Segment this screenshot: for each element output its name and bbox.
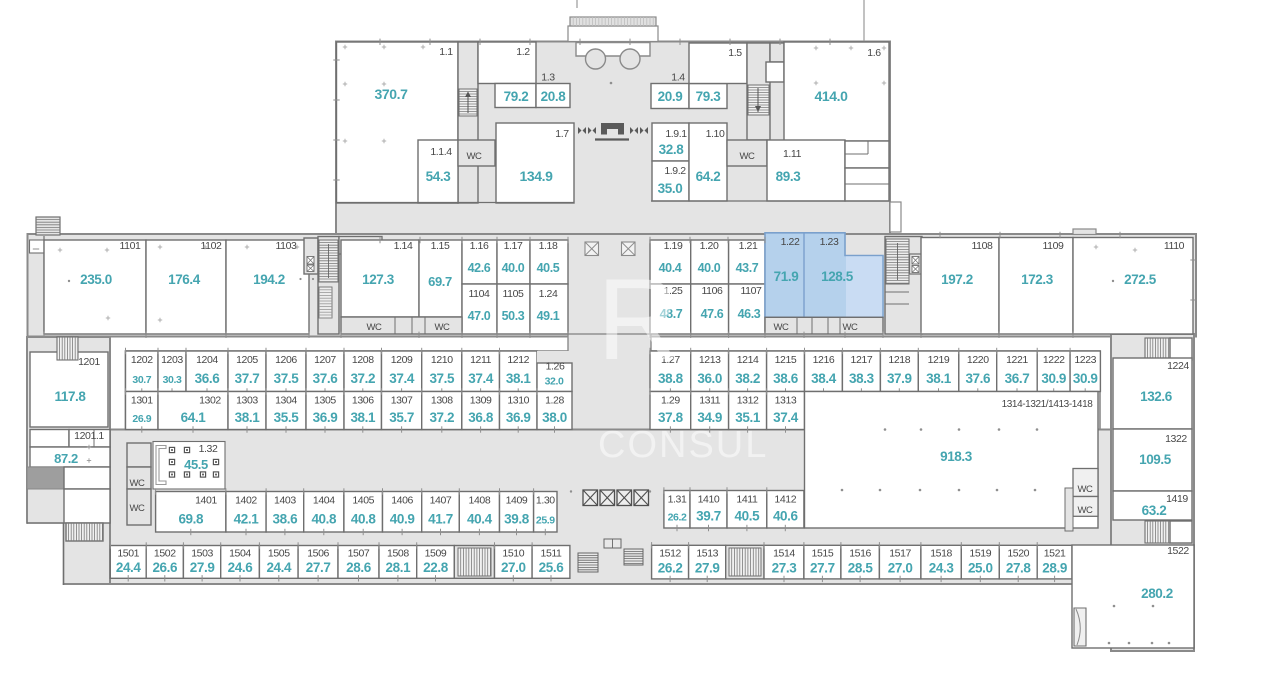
svg-text:40.5: 40.5 bbox=[537, 261, 560, 275]
svg-text:1419: 1419 bbox=[1166, 493, 1188, 505]
svg-text:1211: 1211 bbox=[470, 354, 492, 366]
svg-text:38.1: 38.1 bbox=[235, 410, 261, 425]
svg-text:1312: 1312 bbox=[737, 395, 759, 407]
svg-text:1314-1321/1413-1418: 1314-1321/1413-1418 bbox=[1002, 399, 1094, 410]
svg-text:24.6: 24.6 bbox=[228, 560, 254, 575]
svg-text:1202: 1202 bbox=[131, 354, 153, 366]
svg-text:1401: 1401 bbox=[195, 495, 217, 507]
svg-text:1.21: 1.21 bbox=[739, 240, 758, 252]
svg-text:1406: 1406 bbox=[391, 495, 413, 507]
svg-text:1520: 1520 bbox=[1007, 547, 1029, 559]
svg-text:117.8: 117.8 bbox=[54, 389, 86, 404]
svg-text:26.6: 26.6 bbox=[152, 560, 178, 575]
svg-text:1203: 1203 bbox=[161, 354, 183, 366]
svg-text:27.9: 27.9 bbox=[695, 561, 720, 576]
svg-text:1501: 1501 bbox=[117, 548, 139, 560]
svg-text:28.9: 28.9 bbox=[1042, 561, 1067, 576]
svg-text:1308: 1308 bbox=[431, 395, 453, 407]
svg-text:32.0: 32.0 bbox=[545, 376, 564, 388]
svg-text:1503: 1503 bbox=[191, 548, 213, 560]
svg-text:25.9: 25.9 bbox=[536, 515, 555, 527]
svg-text:38.4: 38.4 bbox=[811, 371, 837, 386]
svg-text:1102: 1102 bbox=[201, 240, 223, 252]
svg-text:1.6: 1.6 bbox=[867, 47, 881, 59]
svg-text:1514: 1514 bbox=[773, 547, 795, 559]
svg-text:1109: 1109 bbox=[1043, 240, 1065, 252]
svg-text:69.7: 69.7 bbox=[428, 274, 452, 289]
svg-text:1208: 1208 bbox=[352, 354, 374, 366]
svg-text:64.1: 64.1 bbox=[181, 410, 207, 425]
svg-text:27.0: 27.0 bbox=[501, 560, 526, 575]
svg-text:1516: 1516 bbox=[849, 547, 871, 559]
svg-text:1.14: 1.14 bbox=[394, 240, 413, 252]
svg-text:26.9: 26.9 bbox=[132, 413, 151, 425]
svg-text:1407: 1407 bbox=[430, 495, 452, 507]
svg-text:1.16: 1.16 bbox=[470, 240, 489, 252]
svg-text:36.9: 36.9 bbox=[506, 410, 531, 425]
svg-text:1213: 1213 bbox=[699, 354, 721, 366]
svg-text:45.5: 45.5 bbox=[184, 457, 208, 472]
svg-text:1210: 1210 bbox=[431, 354, 453, 366]
svg-text:37.5: 37.5 bbox=[429, 371, 455, 386]
svg-text:30.9: 30.9 bbox=[1041, 371, 1066, 386]
svg-text:1.11: 1.11 bbox=[783, 148, 802, 160]
svg-text:1.22: 1.22 bbox=[781, 236, 800, 248]
svg-text:64.2: 64.2 bbox=[696, 169, 721, 184]
svg-text:1408: 1408 bbox=[469, 495, 491, 507]
svg-text:40.0: 40.0 bbox=[502, 261, 525, 275]
svg-text:1207: 1207 bbox=[314, 354, 336, 366]
svg-text:46.3: 46.3 bbox=[738, 307, 761, 321]
svg-text:34.9: 34.9 bbox=[697, 410, 722, 425]
svg-text:1510: 1510 bbox=[502, 548, 524, 560]
svg-text:1.24: 1.24 bbox=[539, 288, 558, 300]
svg-text:38.1: 38.1 bbox=[926, 371, 952, 386]
svg-text:1504: 1504 bbox=[229, 548, 251, 560]
svg-text:42.1: 42.1 bbox=[234, 512, 260, 527]
svg-text:WC: WC bbox=[773, 322, 789, 333]
svg-text:109.5: 109.5 bbox=[1139, 452, 1172, 467]
svg-text:36.8: 36.8 bbox=[468, 410, 494, 425]
svg-text:27.3: 27.3 bbox=[772, 561, 798, 576]
svg-text:280.2: 280.2 bbox=[1141, 586, 1173, 601]
svg-text:1513: 1513 bbox=[696, 547, 718, 559]
svg-text:28.6: 28.6 bbox=[346, 560, 372, 575]
svg-text:WC: WC bbox=[366, 322, 382, 333]
svg-text:1218: 1218 bbox=[888, 354, 910, 366]
svg-text:370.7: 370.7 bbox=[374, 86, 408, 102]
svg-text:1105: 1105 bbox=[503, 288, 525, 300]
svg-text:22.8: 22.8 bbox=[423, 560, 449, 575]
svg-text:40.8: 40.8 bbox=[351, 512, 377, 527]
svg-text:1.5: 1.5 bbox=[728, 47, 742, 59]
svg-text:1305: 1305 bbox=[314, 395, 336, 407]
svg-text:26.2: 26.2 bbox=[658, 561, 683, 576]
svg-text:38.6: 38.6 bbox=[773, 371, 799, 386]
svg-text:1.23: 1.23 bbox=[820, 236, 839, 248]
svg-text:37.2: 37.2 bbox=[429, 410, 454, 425]
svg-text:47.0: 47.0 bbox=[468, 309, 491, 323]
svg-text:1.17: 1.17 bbox=[504, 240, 523, 252]
svg-text:1518: 1518 bbox=[930, 547, 952, 559]
svg-text:1.18: 1.18 bbox=[539, 240, 558, 252]
svg-text:1507: 1507 bbox=[348, 548, 370, 560]
svg-text:40.8: 40.8 bbox=[311, 512, 337, 527]
svg-text:128.5: 128.5 bbox=[821, 269, 854, 284]
svg-text:30.7: 30.7 bbox=[132, 374, 151, 386]
svg-text:1.29: 1.29 bbox=[661, 395, 680, 407]
svg-text:1.26: 1.26 bbox=[546, 361, 565, 373]
svg-text:28.1: 28.1 bbox=[386, 560, 412, 575]
svg-text:172.3: 172.3 bbox=[1021, 272, 1054, 287]
svg-text:30.3: 30.3 bbox=[163, 374, 182, 386]
svg-text:1104: 1104 bbox=[469, 288, 491, 300]
svg-text:1410: 1410 bbox=[698, 494, 720, 506]
svg-text:1313: 1313 bbox=[775, 395, 797, 407]
svg-text:89.3: 89.3 bbox=[776, 169, 802, 184]
svg-text:54.3: 54.3 bbox=[426, 169, 452, 184]
svg-text:27.7: 27.7 bbox=[306, 560, 331, 575]
svg-text:1221: 1221 bbox=[1006, 354, 1028, 366]
svg-text:27.0: 27.0 bbox=[888, 561, 913, 576]
svg-text:1201.1: 1201.1 bbox=[74, 430, 104, 442]
svg-text:39.7: 39.7 bbox=[696, 509, 721, 524]
svg-text:1219: 1219 bbox=[928, 354, 950, 366]
svg-text:WC: WC bbox=[466, 151, 482, 162]
svg-text:1303: 1303 bbox=[236, 395, 258, 407]
svg-text:39.8: 39.8 bbox=[504, 512, 530, 527]
svg-text:1212: 1212 bbox=[507, 354, 529, 366]
svg-text:1103: 1103 bbox=[276, 240, 298, 252]
svg-text:1.7: 1.7 bbox=[555, 128, 569, 140]
svg-text:41.7: 41.7 bbox=[428, 512, 453, 527]
svg-text:1522: 1522 bbox=[1167, 545, 1189, 557]
svg-text:35.5: 35.5 bbox=[274, 410, 300, 425]
svg-text:49.1: 49.1 bbox=[537, 309, 560, 323]
svg-text:25.6: 25.6 bbox=[539, 560, 565, 575]
svg-text:37.5: 37.5 bbox=[274, 371, 300, 386]
svg-text:43.7: 43.7 bbox=[736, 261, 759, 275]
svg-text:1206: 1206 bbox=[275, 354, 297, 366]
svg-text:1215: 1215 bbox=[775, 354, 797, 366]
svg-text:1110: 1110 bbox=[1164, 240, 1185, 252]
svg-text:1223: 1223 bbox=[1074, 354, 1096, 366]
svg-text:1.1: 1.1 bbox=[439, 46, 453, 58]
svg-text:1.32: 1.32 bbox=[199, 443, 218, 455]
svg-text:35.1: 35.1 bbox=[735, 410, 761, 425]
svg-text:87.2: 87.2 bbox=[54, 451, 78, 466]
svg-text:1306: 1306 bbox=[352, 395, 374, 407]
svg-text:1301: 1301 bbox=[131, 395, 153, 407]
svg-text:WC: WC bbox=[842, 322, 858, 333]
svg-text:1216: 1216 bbox=[813, 354, 835, 366]
svg-text:176.4: 176.4 bbox=[168, 272, 201, 287]
svg-text:47.6: 47.6 bbox=[701, 307, 724, 321]
svg-text:38.2: 38.2 bbox=[735, 371, 760, 386]
svg-text:1.30: 1.30 bbox=[536, 495, 555, 507]
svg-text:WC: WC bbox=[434, 322, 450, 333]
svg-text:1409: 1409 bbox=[506, 495, 528, 507]
svg-text:1512: 1512 bbox=[659, 547, 681, 559]
svg-text:194.2: 194.2 bbox=[253, 272, 285, 287]
svg-text:27.8: 27.8 bbox=[1006, 561, 1032, 576]
svg-text:1405: 1405 bbox=[352, 495, 374, 507]
svg-text:24.4: 24.4 bbox=[116, 560, 142, 575]
svg-text:1.28: 1.28 bbox=[545, 395, 564, 407]
svg-text:1310: 1310 bbox=[507, 395, 529, 407]
svg-text:37.6: 37.6 bbox=[965, 371, 991, 386]
svg-text:79.2: 79.2 bbox=[504, 89, 529, 104]
svg-text:WC: WC bbox=[1077, 484, 1093, 495]
svg-text:38.1: 38.1 bbox=[350, 410, 376, 425]
svg-text:38.6: 38.6 bbox=[273, 512, 299, 527]
svg-text:1322: 1322 bbox=[1165, 433, 1187, 445]
svg-text:1217: 1217 bbox=[851, 354, 873, 366]
svg-text:37.4: 37.4 bbox=[468, 371, 494, 386]
svg-text:1222: 1222 bbox=[1043, 354, 1065, 366]
svg-text:1209: 1209 bbox=[391, 354, 413, 366]
svg-text:1521: 1521 bbox=[1044, 547, 1066, 559]
svg-text:1101: 1101 bbox=[120, 240, 142, 252]
svg-text:79.3: 79.3 bbox=[696, 89, 722, 104]
svg-text:1.3: 1.3 bbox=[541, 72, 555, 84]
svg-text:WC: WC bbox=[739, 151, 755, 162]
svg-text:63.2: 63.2 bbox=[1142, 503, 1167, 518]
svg-text:1.19: 1.19 bbox=[664, 240, 683, 252]
svg-text:1205: 1205 bbox=[236, 354, 258, 366]
svg-text:1511: 1511 bbox=[541, 548, 563, 560]
svg-text:1302: 1302 bbox=[199, 395, 221, 407]
svg-text:42.6: 42.6 bbox=[468, 261, 491, 275]
svg-text:40.9: 40.9 bbox=[390, 512, 415, 527]
svg-text:1106: 1106 bbox=[702, 285, 724, 297]
svg-text:1.31: 1.31 bbox=[668, 494, 687, 506]
svg-text:37.8: 37.8 bbox=[658, 410, 684, 425]
svg-text:1311: 1311 bbox=[699, 395, 721, 407]
svg-text:27.9: 27.9 bbox=[190, 560, 215, 575]
svg-text:1220: 1220 bbox=[967, 354, 989, 366]
svg-text:20.9: 20.9 bbox=[658, 89, 683, 104]
svg-text:27.7: 27.7 bbox=[810, 561, 835, 576]
svg-text:1509: 1509 bbox=[425, 548, 447, 560]
svg-text:1107: 1107 bbox=[741, 285, 763, 297]
svg-text:414.0: 414.0 bbox=[814, 88, 848, 104]
svg-text:1402: 1402 bbox=[235, 495, 257, 507]
svg-text:69.8: 69.8 bbox=[178, 512, 204, 527]
svg-text:1508: 1508 bbox=[387, 548, 409, 560]
svg-text:37.4: 37.4 bbox=[773, 410, 799, 425]
svg-text:40.4: 40.4 bbox=[467, 512, 493, 527]
svg-text:197.2: 197.2 bbox=[941, 272, 973, 287]
svg-text:20.8: 20.8 bbox=[541, 89, 567, 104]
svg-text:1201: 1201 bbox=[78, 356, 100, 368]
svg-text:37.7: 37.7 bbox=[235, 371, 260, 386]
svg-text:24.3: 24.3 bbox=[929, 561, 955, 576]
svg-text:1.1.4: 1.1.4 bbox=[430, 146, 452, 158]
svg-text:36.0: 36.0 bbox=[697, 371, 722, 386]
svg-text:1.9.2: 1.9.2 bbox=[664, 165, 686, 177]
svg-text:50.3: 50.3 bbox=[502, 309, 525, 323]
svg-text:1517: 1517 bbox=[889, 547, 911, 559]
svg-text:1214: 1214 bbox=[737, 354, 759, 366]
svg-text:40.6: 40.6 bbox=[773, 509, 799, 524]
svg-text:38.3: 38.3 bbox=[849, 371, 875, 386]
svg-text:1505: 1505 bbox=[268, 548, 290, 560]
svg-text:WC: WC bbox=[129, 478, 145, 489]
svg-text:1224: 1224 bbox=[1167, 360, 1189, 372]
svg-text:1304: 1304 bbox=[275, 395, 297, 407]
svg-text:30.9: 30.9 bbox=[1073, 371, 1098, 386]
svg-text:35.0: 35.0 bbox=[658, 181, 683, 196]
svg-text:272.5: 272.5 bbox=[1124, 272, 1157, 287]
svg-text:1403: 1403 bbox=[274, 495, 296, 507]
svg-text:1.15: 1.15 bbox=[431, 240, 450, 252]
svg-text:26.2: 26.2 bbox=[668, 512, 687, 524]
svg-text:WC: WC bbox=[1077, 505, 1093, 516]
svg-text:WC: WC bbox=[129, 503, 145, 514]
svg-text:1.20: 1.20 bbox=[700, 240, 719, 252]
svg-text:1519: 1519 bbox=[969, 547, 991, 559]
svg-text:1515: 1515 bbox=[812, 547, 834, 559]
svg-text:28.5: 28.5 bbox=[848, 561, 874, 576]
svg-text:235.0: 235.0 bbox=[80, 272, 112, 287]
svg-text:38.1: 38.1 bbox=[506, 371, 532, 386]
svg-text:1506: 1506 bbox=[307, 548, 329, 560]
svg-text:40.5: 40.5 bbox=[735, 509, 761, 524]
svg-text:38.0: 38.0 bbox=[542, 410, 567, 425]
svg-text:37.4: 37.4 bbox=[389, 371, 415, 386]
svg-text:37.6: 37.6 bbox=[313, 371, 339, 386]
svg-text:1411: 1411 bbox=[736, 494, 758, 506]
svg-text:1309: 1309 bbox=[470, 395, 492, 407]
svg-text:1.9.1: 1.9.1 bbox=[665, 128, 687, 140]
svg-text:71.9: 71.9 bbox=[774, 269, 799, 284]
svg-text:1.10: 1.10 bbox=[706, 128, 725, 140]
svg-text:37.9: 37.9 bbox=[887, 371, 912, 386]
svg-text:37.2: 37.2 bbox=[350, 371, 375, 386]
svg-text:36.7: 36.7 bbox=[1005, 371, 1030, 386]
svg-text:1412: 1412 bbox=[774, 494, 796, 506]
svg-text:918.3: 918.3 bbox=[940, 449, 973, 464]
svg-text:1404: 1404 bbox=[313, 495, 335, 507]
svg-text:36.6: 36.6 bbox=[195, 371, 221, 386]
svg-text:127.3: 127.3 bbox=[362, 272, 395, 287]
svg-text:35.7: 35.7 bbox=[389, 410, 414, 425]
svg-text:1.4: 1.4 bbox=[671, 72, 685, 84]
svg-text:36.9: 36.9 bbox=[313, 410, 338, 425]
svg-text:32.8: 32.8 bbox=[659, 142, 685, 157]
svg-text:1307: 1307 bbox=[391, 395, 413, 407]
svg-text:1204: 1204 bbox=[196, 354, 218, 366]
svg-text:132.6: 132.6 bbox=[1140, 389, 1173, 404]
svg-text:40.0: 40.0 bbox=[698, 261, 721, 275]
svg-text:1502: 1502 bbox=[154, 548, 176, 560]
svg-text:24.4: 24.4 bbox=[266, 560, 292, 575]
svg-text:1.2: 1.2 bbox=[516, 46, 530, 58]
svg-text:25.0: 25.0 bbox=[968, 561, 993, 576]
svg-text:1108: 1108 bbox=[972, 240, 994, 252]
svg-text:134.9: 134.9 bbox=[519, 168, 553, 184]
